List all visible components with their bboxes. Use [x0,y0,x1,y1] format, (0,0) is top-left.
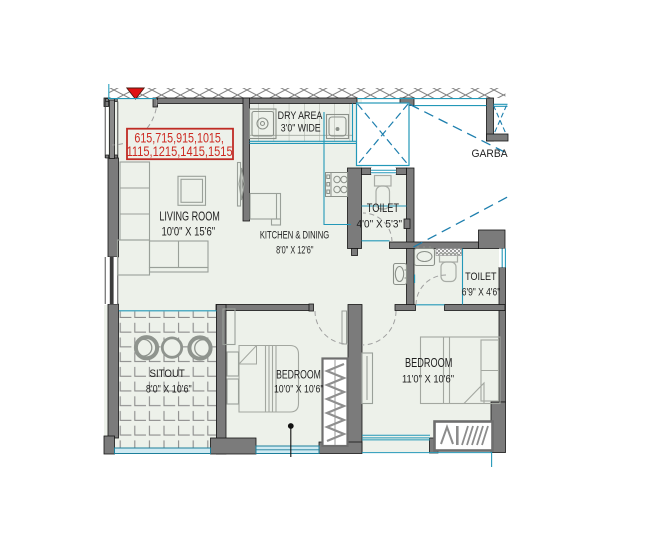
svg-text:8'0" X 12'6": 8'0" X 12'6" [276,244,313,256]
svg-text:6'9" X 4'6": 6'9" X 4'6" [462,286,501,298]
svg-text:DRY AREA: DRY AREA [278,110,323,122]
svg-text:BEDROOM: BEDROOM [405,356,452,370]
svg-text:SITOUT: SITOUT [150,368,186,380]
svg-text:BEDROOM: BEDROOM [276,368,321,381]
svg-text:10'0" X 10'6": 10'0" X 10'6" [274,384,324,396]
svg-text:3'0" WIDE: 3'0" WIDE [281,123,321,135]
svg-text:4'0" X 5'3": 4'0" X 5'3" [357,219,403,231]
svg-text:LIVING ROOM: LIVING ROOM [159,210,220,224]
svg-text:TOILET: TOILET [465,271,497,283]
svg-text:10'0" X 15'6": 10'0" X 15'6" [161,226,215,239]
svg-text:KITCHEN & DINING: KITCHEN & DINING [260,229,329,241]
svg-text:TOILET: TOILET [367,203,399,215]
svg-text:8'0" X 10'6": 8'0" X 10'6" [146,384,192,396]
svg-text:1115,1215,1415,1515: 1115,1215,1415,1515 [127,144,233,160]
svg-text:11'0" X 10'6": 11'0" X 10'6" [402,374,454,386]
